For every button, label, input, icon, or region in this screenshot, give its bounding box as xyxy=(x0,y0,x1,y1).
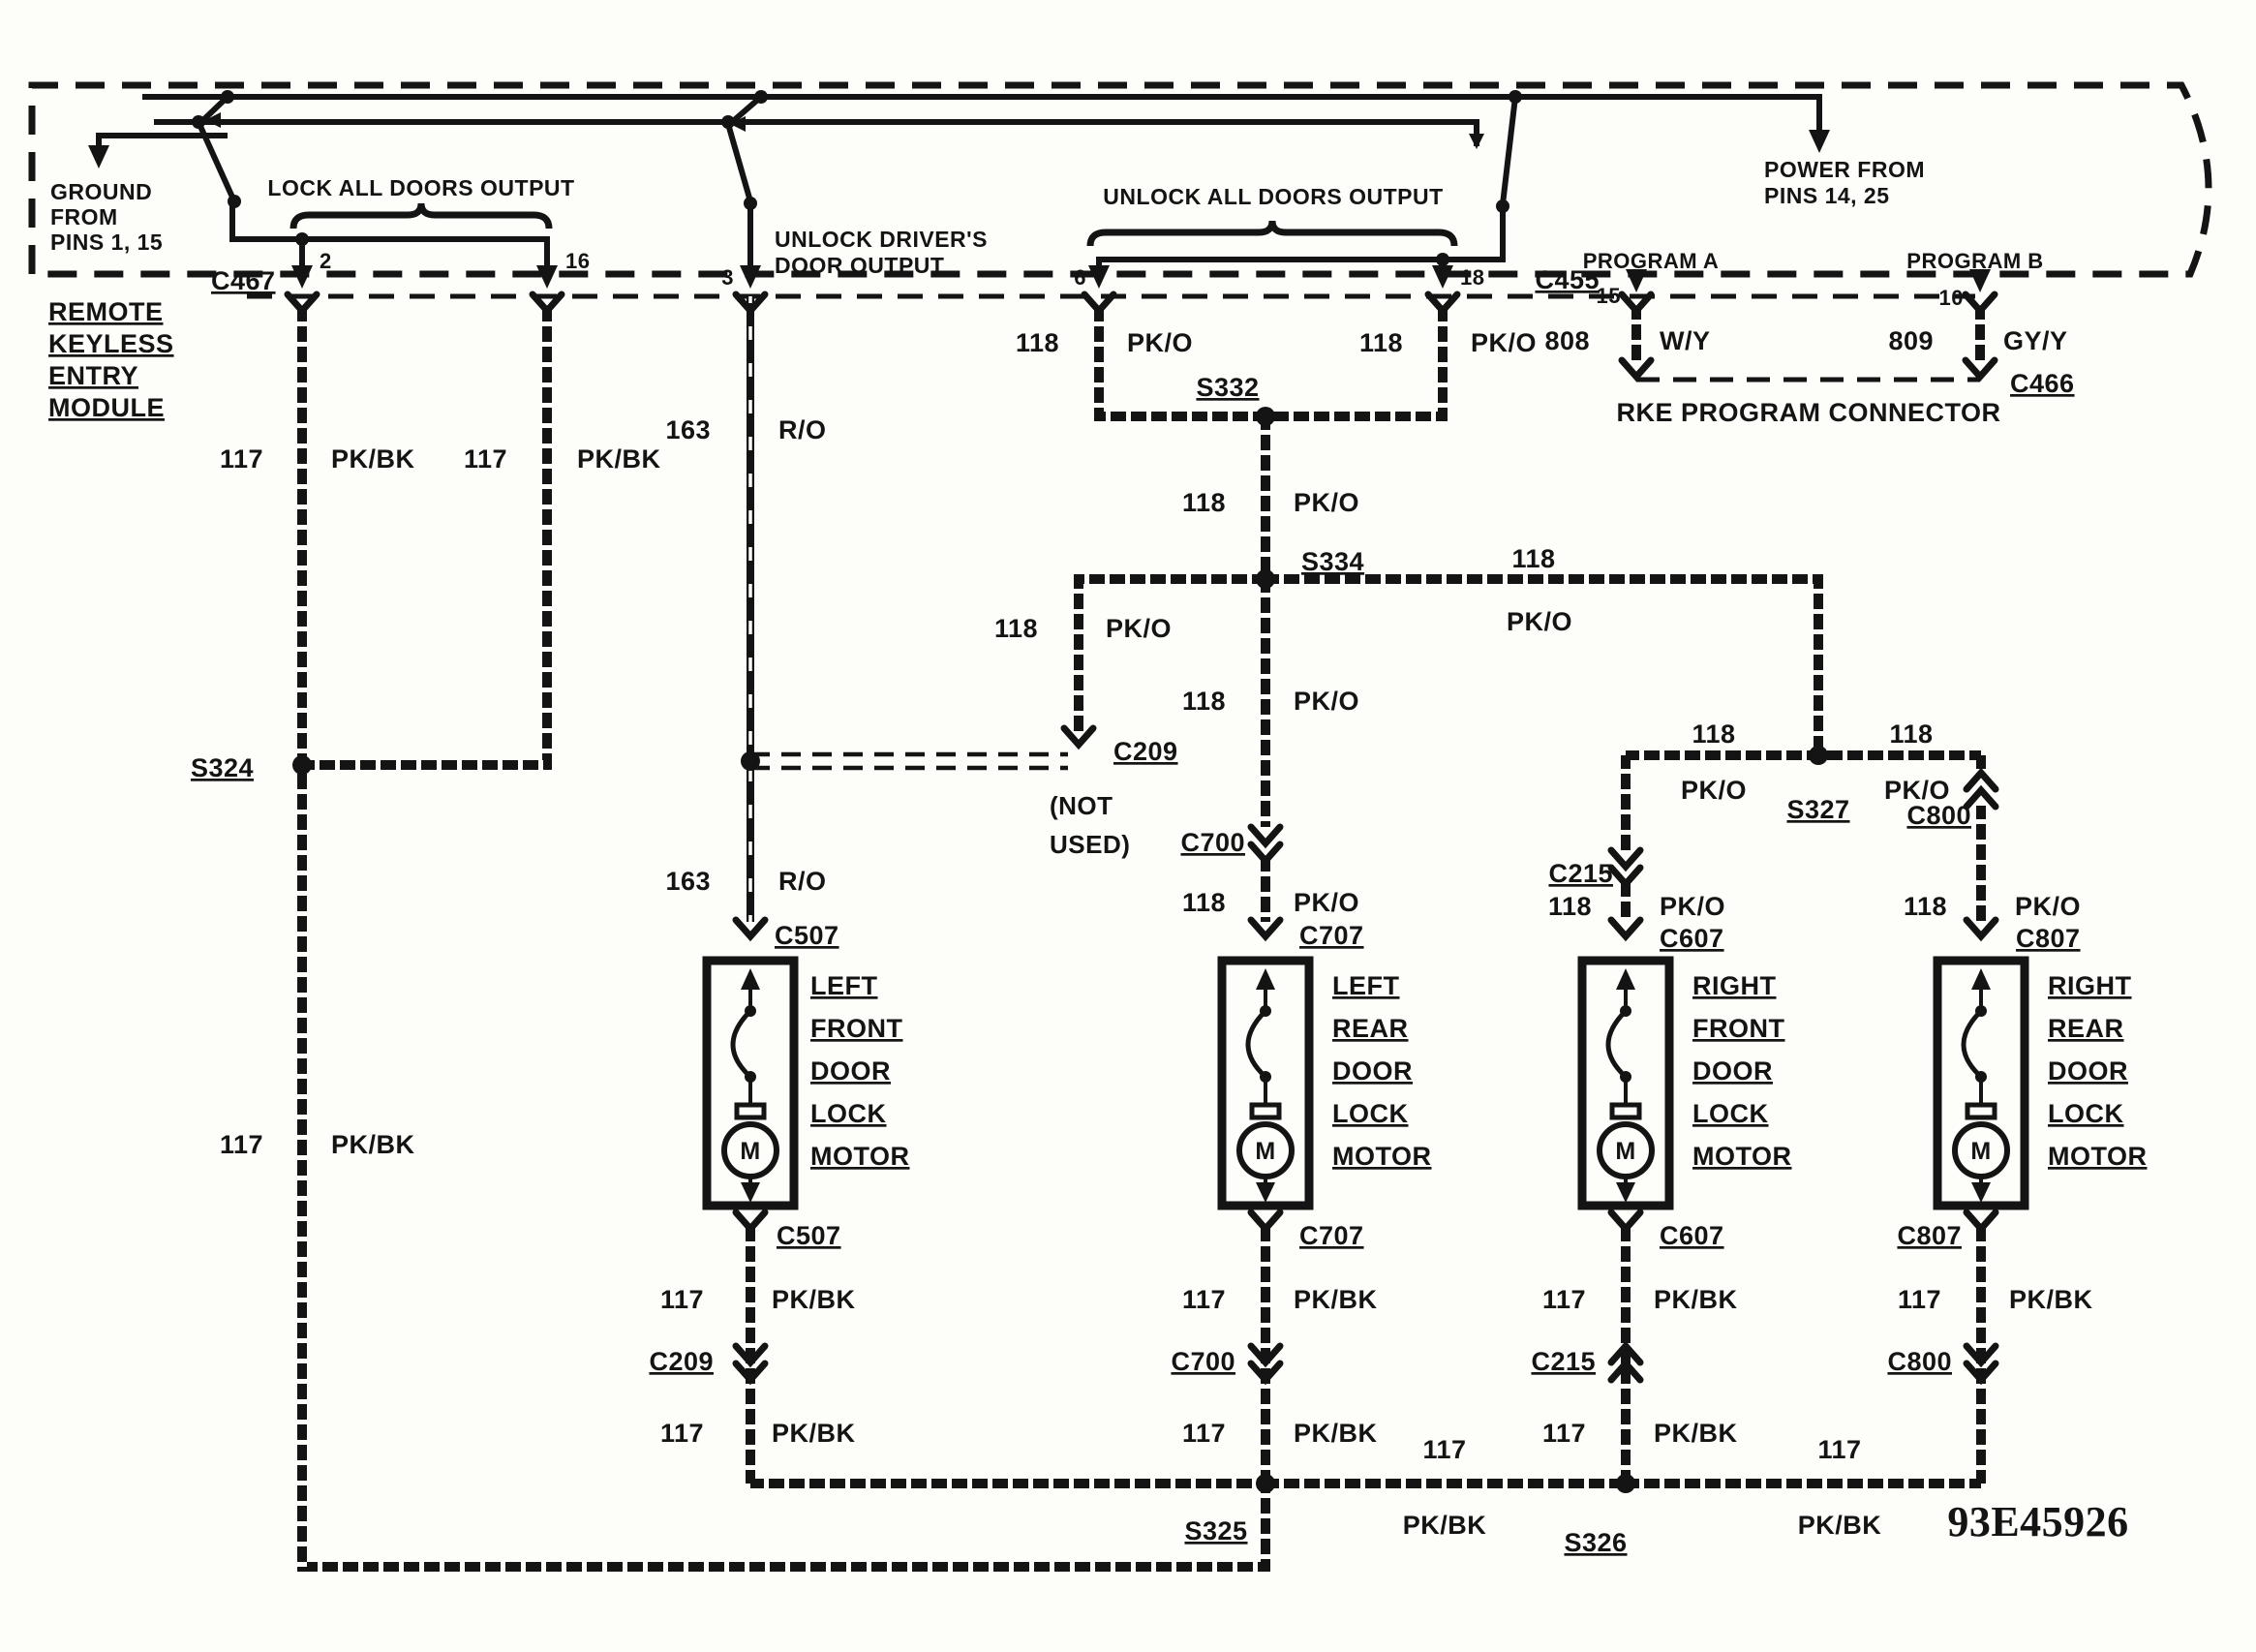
splice-dot-3 xyxy=(1809,746,1828,765)
wire-118-c700-num: 118 xyxy=(1182,687,1226,716)
wire-118-c807-num: 118 xyxy=(1904,892,1947,921)
wire-117-c1a-num: 117 xyxy=(660,1285,704,1314)
joint-dot-1 xyxy=(1436,253,1449,266)
connector-c467: C467 xyxy=(211,266,276,295)
left-front-door-lock-motor-motor-m: M xyxy=(740,1138,760,1165)
power-from-pins-label-2: PINS 14, 25 xyxy=(1764,183,1890,208)
diagram-code: 93E45926 xyxy=(1947,1498,2128,1545)
wire-117-c2a-num: 117 xyxy=(1182,1285,1226,1314)
pin-10: 10 xyxy=(1939,286,1964,310)
splice-dot-2 xyxy=(1256,569,1275,589)
wire-117-run1-num: 117 xyxy=(1422,1435,1466,1464)
wire-163-num-2: 163 xyxy=(665,867,711,896)
splice-s327: S327 xyxy=(1786,795,1849,824)
joint-dot-3 xyxy=(192,115,205,129)
connector-c800-top: C800 xyxy=(1906,801,1971,830)
left-front-door-lock-motor-brush-block xyxy=(737,1105,764,1117)
power-from-pins-label-1: POWER FROM xyxy=(1764,157,1925,182)
module-name-2: KEYLESS xyxy=(48,329,174,358)
wire-118-s327l-color: PK/O xyxy=(1681,776,1747,805)
motor1-label-2: FRONT xyxy=(810,1014,902,1043)
wire-808-num: 808 xyxy=(1544,326,1590,355)
ground-from-pins-label-1: GROUND xyxy=(50,179,152,204)
connector-c607-bottom: C607 xyxy=(1660,1221,1724,1250)
pin-15: 15 xyxy=(1597,284,1621,308)
wire-117-c2b-num: 117 xyxy=(1182,1419,1226,1448)
wire-117-c3a-num: 117 xyxy=(1542,1285,1586,1314)
motor4-label-5: MOTOR xyxy=(2048,1142,2148,1171)
right-front-door-lock-motor: M xyxy=(1582,961,1669,1206)
splice-dot-0 xyxy=(292,755,312,775)
connector-c807-bottom: C807 xyxy=(1897,1221,1962,1250)
ground-from-pins-label-3: PINS 1, 15 xyxy=(50,229,163,255)
wiring-diagram: MMMMGROUNDFROMPINS 1, 15LOCK ALL DOORS O… xyxy=(0,0,2256,1652)
wire-117-c1a-color: PK/BK xyxy=(772,1285,856,1314)
wire-117-c4a-num: 117 xyxy=(1898,1285,1941,1314)
lock-all-doors-output-label: LOCK ALL DOORS OUTPUT xyxy=(267,175,574,200)
splice-dot-4 xyxy=(1256,1474,1275,1493)
splice-dot-1 xyxy=(1256,407,1275,426)
wire-118-c707-num: 118 xyxy=(1182,888,1226,917)
not-used-label-2: USED) xyxy=(1050,830,1130,859)
connector-c215-top: C215 xyxy=(1548,859,1613,888)
motor2-label-2: REAR xyxy=(1332,1014,1409,1043)
connector-c455: C455 xyxy=(1535,265,1600,294)
wiring-diagram-page: MMMMGROUNDFROMPINS 1, 15LOCK ALL DOORS O… xyxy=(0,0,2256,1652)
motor2-label-1: LEFT xyxy=(1332,971,1400,1000)
wire-118-s327run-color: PK/O xyxy=(1507,607,1572,636)
motor2-label-5: MOTOR xyxy=(1332,1142,1432,1171)
wire-117-run2-num: 117 xyxy=(1817,1435,1861,1464)
right-rear-door-lock-motor-motor-m: M xyxy=(1970,1138,1991,1165)
wire-118-s332l-color: PK/O xyxy=(1127,328,1193,357)
splice-s324: S324 xyxy=(191,753,254,782)
motor4-label-1: RIGHT xyxy=(2048,971,2132,1000)
wire-163-num-1: 163 xyxy=(665,415,711,444)
motor4-label-3: DOOR xyxy=(2048,1056,2128,1086)
wire-118-c807-color: PK/O xyxy=(2015,892,2081,921)
splice-s334: S334 xyxy=(1301,547,1364,576)
pin-18: 18 xyxy=(1460,265,1484,290)
connector-c700-top: C700 xyxy=(1180,828,1245,857)
program-a-label: PROGRAM A xyxy=(1583,249,1720,273)
wire-118-s332r-num: 118 xyxy=(1359,328,1403,357)
wire-118-c707-color: PK/O xyxy=(1294,888,1359,917)
motor3-label-2: FRONT xyxy=(1692,1014,1784,1043)
unlock-all-doors-output-label: UNLOCK ALL DOORS OUTPUT xyxy=(1103,184,1443,209)
wire-118-c209-num: 118 xyxy=(994,614,1038,643)
wire-118-s332r-color: PK/O xyxy=(1471,328,1537,357)
wire-118-s327run-num: 118 xyxy=(1511,544,1555,573)
pin-3: 3 xyxy=(721,265,734,290)
connector-c700-bottom: C700 xyxy=(1171,1347,1235,1376)
wire-117-c3b-num: 117 xyxy=(1542,1419,1586,1448)
motor3-label-4: LOCK xyxy=(1692,1099,1769,1128)
wire-808-color: W/Y xyxy=(1660,326,1711,355)
wire-118-s334-num: 118 xyxy=(1182,488,1226,517)
wire-117-run2-color: PK/BK xyxy=(1798,1511,1882,1540)
left-rear-door-lock-motor-brush-block xyxy=(1252,1105,1279,1117)
wire-117-run1-color: PK/BK xyxy=(1403,1511,1487,1540)
joint-dot-7 xyxy=(744,197,757,210)
wire-163-color-1: R/O xyxy=(778,415,827,444)
wire-118-c209-color: PK/O xyxy=(1106,614,1172,643)
wire-118-s327r-num: 118 xyxy=(1889,719,1933,749)
module-name-4: MODULE xyxy=(48,393,165,422)
joint-dot-6 xyxy=(721,115,735,129)
connector-c209-top: C209 xyxy=(1113,737,1178,766)
program-b-label: PROGRAM B xyxy=(1906,249,2043,273)
joint-dot-0 xyxy=(295,232,309,246)
module-name-3: ENTRY xyxy=(48,361,138,390)
wire-117-b-num: 117 xyxy=(464,444,507,474)
wire-117-long-color: PK/BK xyxy=(331,1130,415,1159)
right-front-door-lock-motor-motor-m: M xyxy=(1615,1138,1635,1165)
motor1-label-3: DOOR xyxy=(810,1056,891,1086)
not-used-label-1: (NOT xyxy=(1050,791,1113,820)
wire-118-s334-color: PK/O xyxy=(1294,488,1359,517)
wire-118-s327l-num: 118 xyxy=(1692,719,1735,749)
wire-117-b-color: PK/BK xyxy=(577,444,661,474)
right-rear-door-lock-motor-brush-block xyxy=(1967,1105,1995,1117)
motor4-label-2: REAR xyxy=(2048,1014,2124,1043)
left-rear-door-lock-motor-motor-m: M xyxy=(1255,1138,1275,1165)
motor2-label-4: LOCK xyxy=(1332,1099,1409,1128)
splice-s326: S326 xyxy=(1564,1528,1627,1557)
wire-809-num: 809 xyxy=(1888,326,1934,355)
splice-s332: S332 xyxy=(1196,373,1259,402)
connector-c215-bottom: C215 xyxy=(1531,1347,1596,1376)
wire-809-color: GY/Y xyxy=(2003,326,2068,355)
unlock-drivers-door-label-1: UNLOCK DRIVER'S xyxy=(775,227,988,252)
wire-117-c3b-color: PK/BK xyxy=(1654,1419,1738,1448)
connector-c507-top: C507 xyxy=(775,921,839,950)
wire-117-c2a-color: PK/BK xyxy=(1294,1285,1378,1314)
motor1-label-5: MOTOR xyxy=(810,1142,910,1171)
motor2-label-3: DOOR xyxy=(1332,1056,1413,1086)
connector-c507-bottom: C507 xyxy=(777,1221,841,1250)
wire-117-c2b-color: PK/BK xyxy=(1294,1419,1378,1448)
unlock-drivers-door-label-2: DOOR OUTPUT xyxy=(775,253,944,278)
connector-c607-top: C607 xyxy=(1660,924,1724,953)
ground-from-pins-label-2: FROM xyxy=(50,204,118,229)
connector-c807-top: C807 xyxy=(2016,924,2081,953)
joint-dot-8 xyxy=(1509,90,1522,104)
joint-dot-9 xyxy=(1496,199,1509,213)
connector-c707-top: C707 xyxy=(1299,921,1364,950)
motor4-label-4: LOCK xyxy=(2048,1099,2124,1128)
rke-program-connector-label: RKE PROGRAM CONNECTOR xyxy=(1616,398,2000,427)
splice-dot-6 xyxy=(741,751,760,771)
connector-c707-bottom: C707 xyxy=(1299,1221,1364,1250)
wire-117-c4a-color: PK/BK xyxy=(2009,1285,2093,1314)
wire-117-c1b-num: 117 xyxy=(660,1419,704,1448)
wire-118-c607-color: PK/O xyxy=(1660,892,1725,921)
motor3-label-1: RIGHT xyxy=(1692,971,1777,1000)
wire-118-c700-color: PK/O xyxy=(1294,687,1359,716)
motor1-label-1: LEFT xyxy=(810,971,878,1000)
wire-163-color-2: R/O xyxy=(778,867,827,896)
connector-c466: C466 xyxy=(2010,369,2075,398)
joint-dot-4 xyxy=(228,195,241,208)
wire-118-s332l-num: 118 xyxy=(1016,328,1059,357)
connector-c800-bott om: C800 xyxy=(1887,1347,1952,1376)
left-rear-door-lock-motor: M xyxy=(1222,961,1309,1206)
right-front-door-lock-motor-brush-block xyxy=(1612,1105,1639,1117)
motor1-label-4: LOCK xyxy=(810,1099,887,1128)
wire-117-long-num: 117 xyxy=(220,1130,263,1159)
wire-117-c3a-color: PK/BK xyxy=(1654,1285,1738,1314)
wire-117-a-color: PK/BK xyxy=(331,444,415,474)
splice-dot-5 xyxy=(1616,1474,1635,1493)
wire-117-c1b-color: PK/BK xyxy=(772,1419,856,1448)
motor3-label-5: MOTOR xyxy=(1692,1142,1792,1171)
pin-2: 2 xyxy=(320,249,332,273)
motor3-label-3: DOOR xyxy=(1692,1056,1773,1086)
module-name-1: REMOTE xyxy=(48,297,164,326)
connector-c209-bottom: C209 xyxy=(649,1347,714,1376)
right-rear-door-lock-motor: M xyxy=(1937,961,2025,1206)
left-front-door-lock-motor: M xyxy=(707,961,794,1206)
splice-s325: S325 xyxy=(1184,1516,1247,1545)
pin-16: 16 xyxy=(565,249,590,273)
wire-118-c607-num: 118 xyxy=(1548,892,1592,921)
wire-117-a-num: 117 xyxy=(220,444,263,474)
pin-6: 6 xyxy=(1074,265,1086,290)
joint-dot-5 xyxy=(754,90,768,104)
joint-dot-2 xyxy=(221,90,234,104)
